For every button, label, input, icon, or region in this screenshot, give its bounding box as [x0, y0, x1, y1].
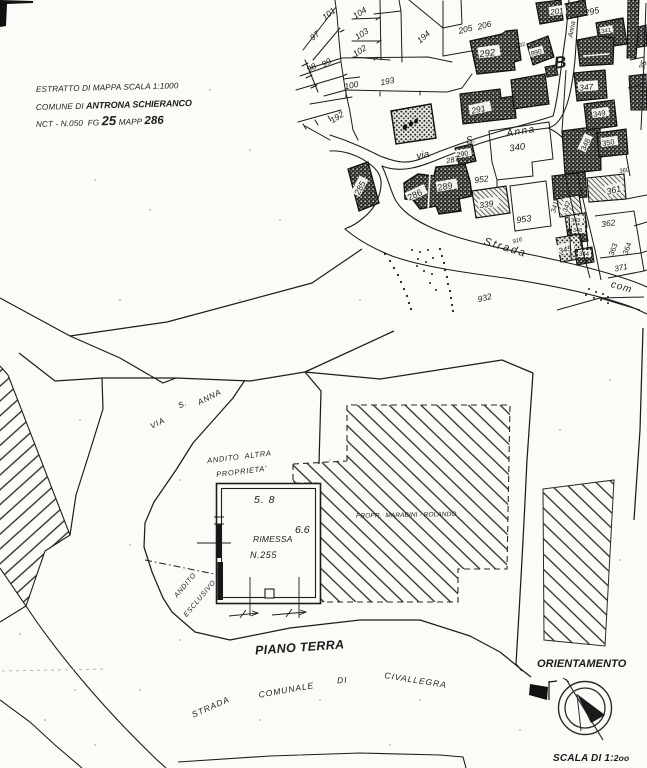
svg-text:5. 8: 5. 8: [254, 494, 276, 506]
svg-text:953: 953: [516, 213, 532, 225]
svg-text:350: 350: [602, 137, 616, 148]
svg-text:DI: DI: [337, 675, 348, 686]
svg-text:SCALA DI 1:2oo: SCALA DI 1:2oo: [553, 753, 629, 764]
svg-text:S.: S.: [465, 134, 476, 146]
svg-text:952: 952: [474, 173, 490, 185]
svg-text:ORIENTAMENTO: ORIENTAMENTO: [537, 658, 627, 670]
svg-text:N.255: N.255: [250, 550, 277, 560]
svg-text:347: 347: [579, 82, 594, 93]
svg-text:349: 349: [593, 108, 607, 119]
svg-text:6.6: 6.6: [295, 524, 310, 536]
svg-text:340: 340: [509, 141, 527, 154]
svg-text:362: 362: [601, 217, 617, 229]
svg-text:RIMESSA: RIMESSA: [253, 534, 293, 544]
